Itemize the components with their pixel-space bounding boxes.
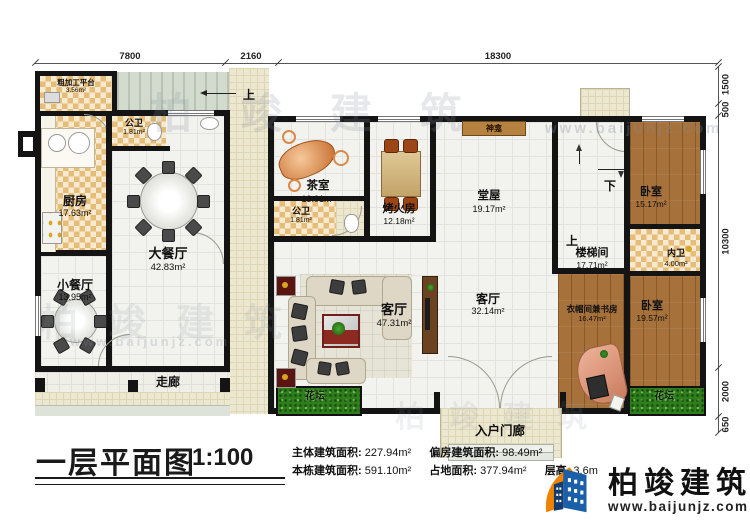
room-name: 走廊 [156, 375, 180, 389]
stair-down-label: 下 [604, 177, 616, 194]
kitchen-sink-bowl [48, 134, 66, 152]
planter-flower [282, 374, 288, 380]
corridor-column [35, 378, 45, 392]
dim-right-500: 500 [721, 88, 732, 132]
chair-icon [127, 195, 140, 208]
chair-icon [162, 161, 175, 174]
room-label-wc-left: 公卫 1.81m² [123, 118, 145, 137]
window [700, 150, 706, 194]
room-label-inner-wc: 内卫 4.00m² [664, 248, 687, 268]
wall-bed1-innerwc [630, 224, 706, 229]
outdoor-ramp [117, 72, 229, 112]
wall-bedrooms-west [624, 122, 630, 408]
pillow-icon [291, 325, 308, 342]
stat-label: 占地面积: [429, 465, 477, 477]
room-label-corridor: 走廊 [156, 375, 180, 389]
flue-cavity [23, 137, 33, 151]
tea-stool-icon [288, 179, 301, 192]
window [700, 298, 706, 342]
ramp-up-arrow-line [206, 93, 236, 94]
pillow-icon [351, 279, 367, 295]
chair-icon [384, 139, 399, 153]
room-label-large-dining: 大餐厅 42.83m² [148, 246, 187, 273]
room-label-living-mid: 客厅 32.14m² [471, 292, 504, 317]
south-apron [35, 392, 230, 405]
fire-room-table [381, 151, 421, 197]
dim-right-650: 650 [721, 403, 732, 447]
room-label-entry-porch: 入户门廊 [475, 424, 525, 439]
floor-bedroom-bottom [630, 276, 700, 386]
down-arrow-line [598, 169, 624, 170]
room-label-flowerbed-left: 花坛 [305, 391, 325, 403]
stat-label: 主体建筑面积: [292, 447, 362, 459]
room-name: 公卫 [290, 206, 312, 217]
room-area: 15.17m² [635, 199, 666, 209]
stair-up-arrowhead [576, 144, 582, 151]
corridor-column [128, 380, 138, 392]
chair-icon [197, 195, 210, 208]
room-name: 入户门廊 [475, 424, 525, 439]
room-area: 19.17m² [472, 204, 505, 215]
room-label-rough-platform: 粗加工平台 3.56m² [57, 78, 95, 95]
room-label-bedroom-bottom: 卧室 19.57m² [636, 300, 667, 323]
brand-logo-icon [540, 458, 602, 525]
room-area: 4.00m² [664, 259, 687, 268]
wall-wcleft-south [112, 146, 170, 151]
stat-label: 偏房建筑面积: [429, 447, 499, 459]
stat-value: 227.94m² [365, 447, 411, 459]
pillow-icon [317, 361, 332, 376]
wall-innerwc-bed2 [630, 271, 706, 276]
basin-icon [200, 117, 219, 130]
pillow-icon [335, 361, 350, 376]
toilet-icon [344, 214, 359, 233]
chair-icon [94, 315, 107, 328]
window [642, 116, 684, 122]
room-name: 堂屋 [472, 190, 505, 204]
stat-value: 377.94m² [480, 465, 526, 477]
chair-icon [403, 139, 418, 153]
stat-value: 591.10m² [365, 465, 411, 477]
window [168, 110, 214, 116]
room-label-flowerbed-right: 花坛 [654, 391, 674, 403]
title-underline [35, 477, 285, 485]
ramp-up-arrowhead [200, 90, 207, 96]
chair-icon [41, 315, 54, 328]
room-area: 17.71m² [576, 260, 609, 270]
plant-icon [600, 350, 608, 358]
room-label-kitchen: 厨房 17.63m² [58, 194, 91, 219]
window [296, 116, 340, 122]
page-title: 一层平面图 [36, 438, 196, 482]
room-name: 客厅 [377, 302, 412, 318]
brand-logo: 柏竣建筑 www.baijunjz.com [540, 456, 748, 526]
dining-table-small [54, 299, 98, 343]
room-area: 13.01m² [301, 194, 334, 205]
room-area: 42.83m² [148, 262, 187, 273]
stat-value: 98.49m² [502, 447, 542, 459]
room-name: 花坛 [305, 391, 325, 403]
wall-tea-fire [364, 122, 370, 236]
plant-icon [427, 284, 434, 291]
room-name: 衣帽间兼书房 [566, 304, 617, 314]
dim-right-10300: 10300 [721, 220, 732, 264]
wall-kitchen-dining [106, 116, 112, 256]
dim-top-18300: 18300 [468, 51, 528, 62]
room-label-hall: 堂屋 19.17m² [472, 190, 505, 215]
room-name: 客厅 [471, 292, 504, 306]
planter-flower [282, 282, 288, 288]
stair-up-arrow-line [579, 150, 580, 164]
room-area: 13.95m² [57, 292, 93, 303]
window [378, 116, 420, 122]
brand-website: www.baijunjz.com [608, 499, 750, 514]
room-name: 公卫 [123, 118, 145, 129]
room-label-cloak-study: 衣帽间兼书房 16.47m² [566, 304, 617, 323]
dimension-line-right [718, 67, 719, 433]
side-walkway [229, 68, 269, 414]
room-label-tea-room: 茶室 13.01m² [301, 180, 334, 205]
room-area: 16.47m² [566, 314, 617, 323]
tea-stool-icon [282, 130, 296, 144]
room-name: 小餐厅 [57, 278, 93, 292]
room-name: 内卫 [664, 248, 687, 259]
chair-icon [162, 229, 175, 242]
dim-top-7800: 7800 [105, 51, 155, 62]
room-area: 17.63m² [58, 208, 91, 219]
pillow-icon [329, 279, 345, 295]
room-label-stairwell: 楼梯间 17.71m² [576, 247, 609, 270]
room-label-wc-mid: 公卫 1.81m² [290, 206, 312, 225]
room-area: 12.18m² [383, 216, 416, 226]
room-name: 大餐厅 [148, 246, 187, 262]
room-label-small-dining: 小餐厅 13.95m² [57, 278, 93, 303]
back-porch [580, 88, 630, 118]
room-area: 1.81m² [290, 217, 312, 225]
wall-toprooms-living [274, 236, 436, 242]
room-area: 32.14m² [471, 306, 504, 317]
scale-label: 1:100 [192, 444, 253, 472]
shrine-label: 神龛 [486, 124, 502, 133]
down-arrowhead [618, 171, 624, 178]
room-name: 烤火房 [383, 203, 416, 216]
room-name: 卧室 [635, 186, 666, 199]
shrine-shelf: 神龛 [462, 121, 526, 136]
kitchen-sink-bowl [68, 132, 90, 154]
room-name: 厨房 [58, 194, 91, 208]
brand-name: 柏竣建筑 [608, 468, 750, 500]
corridor-column [220, 378, 230, 392]
stat-label: 本栋建筑面积: [292, 465, 362, 477]
tea-stool-icon [333, 150, 349, 166]
room-name: 茶室 [301, 180, 334, 194]
room-name: 楼梯间 [576, 247, 609, 260]
room-name: 卧室 [636, 300, 667, 313]
pillow-icon [291, 303, 309, 321]
room-label-bedroom-top: 卧室 15.17m² [635, 186, 666, 209]
brand-text-group: 柏竣建筑 www.baijunjz.com [608, 468, 750, 515]
room-area: 3.56m² [57, 87, 95, 95]
room-label-fire-room: 烤火房 12.18m² [383, 203, 416, 226]
south-step-strip [35, 405, 230, 416]
ramp-up-label: 上 [243, 86, 255, 103]
tv-icon [425, 298, 430, 330]
dimension-line-top [35, 63, 718, 64]
room-area: 19.57m² [636, 313, 667, 323]
dim-top-2160: 2160 [226, 51, 276, 62]
building-logo-icon [540, 458, 602, 520]
room-name: 粗加工平台 [57, 78, 95, 87]
room-area: 47.31m² [377, 318, 412, 329]
toilet-icon [147, 123, 162, 141]
room-area: 1.81m² [123, 129, 145, 137]
room-name: 花坛 [654, 391, 674, 403]
wall-fire-hall [430, 122, 436, 236]
plant-icon [332, 322, 345, 335]
wall-hall-stair [552, 122, 558, 268]
floor-plan-canvas: 神龛 下 上 [0, 0, 750, 530]
room-label-living-left: 客厅 47.31m² [377, 302, 412, 329]
